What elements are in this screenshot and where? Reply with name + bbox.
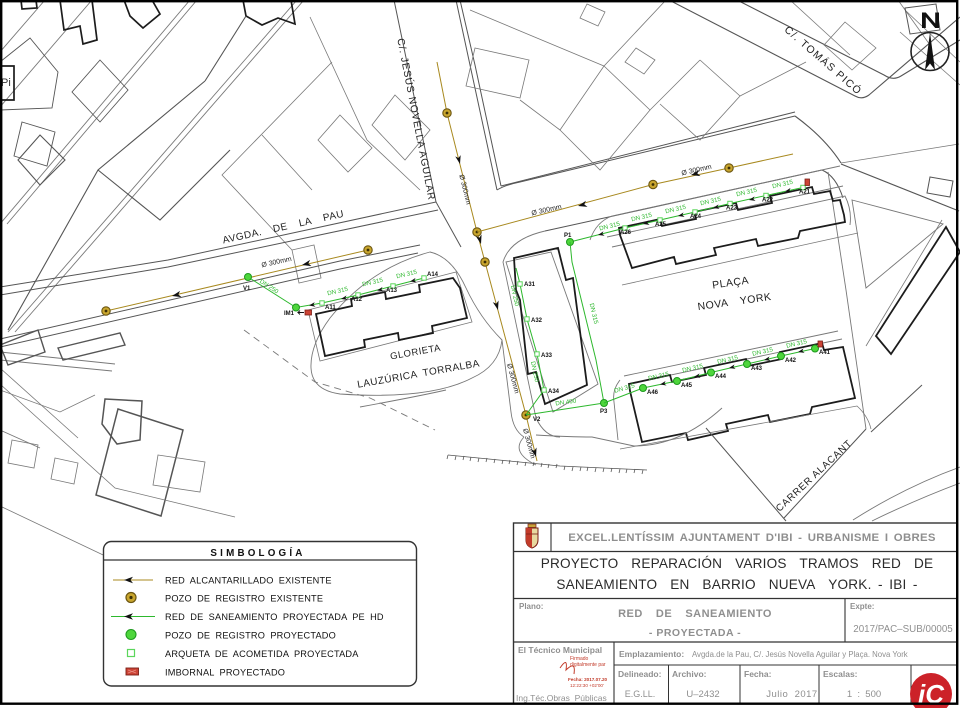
svg-text:SANEAMIENTO EN BARRIO NUEVA: SANEAMIENTO EN BARRIO NUEVA YORK. - IBI … <box>556 577 917 592</box>
svg-text:RED DE SANEAMIENTO PROYECTADA: RED DE SANEAMIENTO PROYECTADA PE HD <box>165 612 384 622</box>
svg-text:IMBORNAL PROYECTADO: IMBORNAL PROYECTADO <box>165 668 285 678</box>
svg-text:P3: P3 <box>600 409 608 415</box>
svg-text:U–2432: U–2432 <box>686 689 719 700</box>
svg-text:POZO DE REGISTRO EXISTENTE: POZO DE REGISTRO EXISTENTE <box>165 594 323 604</box>
svg-text:A34: A34 <box>548 389 560 395</box>
svg-text:Escalas:: Escalas: <box>823 669 858 679</box>
svg-text:Expte:: Expte: <box>850 602 874 611</box>
svg-text:Archivo:: Archivo: <box>672 669 707 679</box>
svg-text:Fecha: 2017.07.20: Fecha: 2017.07.20 <box>568 677 608 682</box>
svg-text:Fecha:: Fecha: <box>744 669 772 679</box>
svg-text:PROYECTO REPARACIÓN VARIOS: PROYECTO REPARACIÓN VARIOS TRAMOS RED DE <box>541 556 934 571</box>
svg-text:A21: A21 <box>799 190 811 196</box>
svg-text:A26: A26 <box>620 230 632 236</box>
svg-text:digitalmente par: digitalmente par <box>570 662 606 668</box>
svg-text:El Técnico Municipal: El Técnico Municipal <box>518 645 602 655</box>
svg-text:12:22:30 +02'00': 12:22:30 +02'00' <box>570 683 604 688</box>
svg-text:A45: A45 <box>681 383 693 389</box>
svg-text:A31: A31 <box>524 282 536 288</box>
svg-text:A13: A13 <box>386 288 398 294</box>
svg-text:A33: A33 <box>541 353 553 359</box>
svg-text:P1: P1 <box>564 233 572 239</box>
svg-text:POZO DE REGISTRO PROYECTADO: POZO DE REGISTRO PROYECTADO <box>165 631 336 641</box>
svg-text:A44: A44 <box>715 374 727 380</box>
svg-text:Pi: Pi <box>1 77 11 89</box>
svg-text:ARQUETA DE ACOMETIDA PROYECTAD: ARQUETA DE ACOMETIDA PROYECTADA <box>165 649 359 659</box>
svg-text:EXCEL.LENTÍSSIM AJUNTAMENT D'I: EXCEL.LENTÍSSIM AJUNTAMENT D'IBI - URBAN… <box>568 531 936 544</box>
svg-text:V1: V1 <box>243 286 251 292</box>
svg-text:2017/PAC–SUB/00005: 2017/PAC–SUB/00005 <box>853 624 953 635</box>
svg-text:RED ALCANTARILLADO EXISTENTE: RED ALCANTARILLADO EXISTENTE <box>165 576 332 586</box>
svg-text:Delineado:: Delineado: <box>618 669 662 679</box>
svg-text:E.G.LL.: E.G.LL. <box>625 689 656 699</box>
svg-text:A32: A32 <box>531 318 543 324</box>
svg-text:A43: A43 <box>751 366 763 372</box>
svg-text:A24: A24 <box>690 214 702 220</box>
svg-text:SIMBOLOGÍA: SIMBOLOGÍA <box>210 547 305 559</box>
svg-text:Plano:: Plano: <box>519 602 543 611</box>
svg-text:A41: A41 <box>819 350 831 356</box>
svg-text:Avgda.de la Pau, C/. Jesús Nov: Avgda.de la Pau, C/. Jesús Novella Aguil… <box>692 650 908 659</box>
svg-text:Julio 2017: Julio 2017 <box>766 689 817 700</box>
svg-text:- PROYECTADA -: - PROYECTADA - <box>649 627 741 639</box>
svg-text:A42: A42 <box>785 358 797 364</box>
svg-text:A23: A23 <box>726 206 738 212</box>
svg-text:A25: A25 <box>655 222 667 228</box>
svg-text:A46: A46 <box>647 390 659 396</box>
svg-text:IM1: IM1 <box>284 311 295 317</box>
svg-text:A11: A11 <box>325 305 336 311</box>
svg-text:V2: V2 <box>533 417 541 423</box>
svg-text:A14: A14 <box>427 272 439 278</box>
svg-text:RED DE SANEAMIENTO: RED DE SANEAMIENTO <box>618 608 772 620</box>
svg-text:Ing.Téc.Obras Públicas: Ing.Téc.Obras Públicas <box>516 693 607 703</box>
svg-text:Emplazamiento:: Emplazamiento: <box>619 649 684 659</box>
svg-text:1 : 500: 1 : 500 <box>847 689 881 700</box>
svg-text:A22: A22 <box>762 198 774 204</box>
svg-text:A12: A12 <box>351 297 363 303</box>
